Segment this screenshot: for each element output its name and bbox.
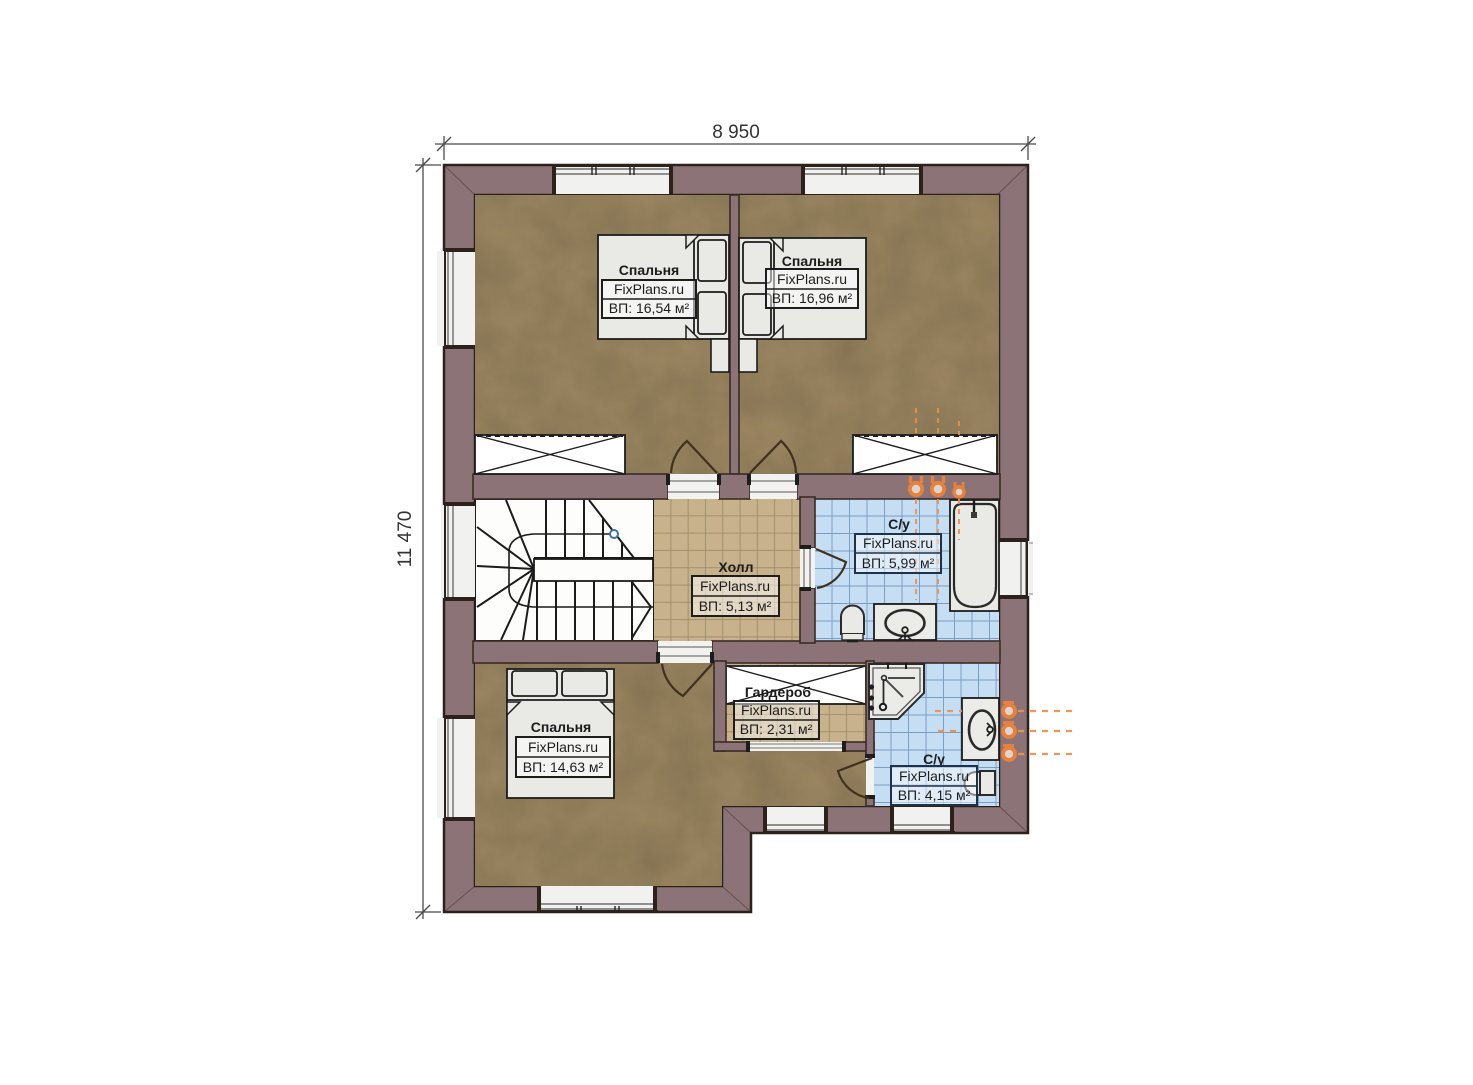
svg-text:Спальня: Спальня xyxy=(782,253,842,269)
svg-text:С/у: С/у xyxy=(923,751,945,767)
svg-text:FixPlans.ru: FixPlans.ru xyxy=(777,271,847,287)
svg-text:С/у: С/у xyxy=(888,516,910,532)
svg-text:FixPlans.ru: FixPlans.ru xyxy=(899,768,969,784)
svg-text:FixPlans.ru: FixPlans.ru xyxy=(528,739,598,755)
svg-text:FixPlans.ru: FixPlans.ru xyxy=(700,578,770,594)
svg-text:Гардероб: Гардероб xyxy=(745,684,812,700)
svg-text:FixPlans.ru: FixPlans.ru xyxy=(863,535,933,551)
svg-text:Спальня: Спальня xyxy=(619,262,679,278)
svg-text:ВП: 4,15 м²: ВП: 4,15 м² xyxy=(898,787,971,803)
svg-text:Спальня: Спальня xyxy=(531,719,591,735)
svg-text:FixPlans.ru: FixPlans.ru xyxy=(614,281,684,297)
svg-text:FixPlans.ru: FixPlans.ru xyxy=(741,702,811,718)
svg-text:11 470: 11 470 xyxy=(395,511,416,568)
svg-text:ВП: 5,13 м²: ВП: 5,13 м² xyxy=(699,598,772,614)
svg-text:Холл: Холл xyxy=(718,559,753,575)
svg-text:8 950: 8 950 xyxy=(712,122,760,143)
svg-text:ВП: 16,96 м²: ВП: 16,96 м² xyxy=(772,290,853,306)
svg-text:ВП: 5,99 м²: ВП: 5,99 м² xyxy=(862,555,935,571)
svg-text:ВП: 14,63 м²: ВП: 14,63 м² xyxy=(523,759,604,775)
svg-text:ВП: 16,54 м²: ВП: 16,54 м² xyxy=(609,300,690,316)
svg-text:ВП: 2,31 м²: ВП: 2,31 м² xyxy=(740,721,813,737)
